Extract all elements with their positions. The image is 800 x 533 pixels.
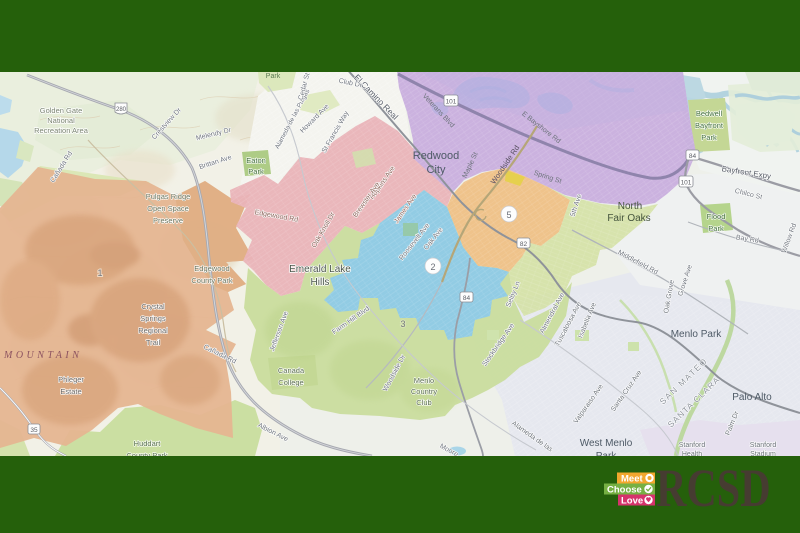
- svg-text:Redwood: Redwood: [413, 150, 459, 162]
- svg-text:Stanford: Stanford: [679, 442, 706, 449]
- svg-text:RCSD: RCSD: [656, 459, 771, 518]
- svg-text:Club: Club: [416, 398, 431, 407]
- svg-text:Emerald Lake: Emerald Lake: [289, 264, 351, 275]
- svg-text:Bedwell: Bedwell: [696, 109, 723, 118]
- svg-text:Huddart: Huddart: [134, 439, 162, 448]
- svg-text:Hills: Hills: [311, 277, 330, 288]
- svg-text:City: City: [427, 164, 446, 176]
- svg-text:Preserve: Preserve: [153, 216, 183, 225]
- svg-text:Canada: Canada: [278, 366, 305, 375]
- svg-text:5: 5: [506, 210, 511, 220]
- svg-text:County Park: County Park: [191, 276, 233, 285]
- svg-text:College: College: [278, 378, 303, 387]
- svg-text:Park: Park: [708, 224, 724, 233]
- svg-text:Bayfront: Bayfront: [695, 121, 724, 130]
- svg-text:Trail: Trail: [146, 338, 161, 347]
- svg-text:Choose: Choose: [607, 485, 642, 496]
- svg-text:Palo Alto: Palo Alto: [732, 392, 772, 403]
- svg-text:Fair Oaks: Fair Oaks: [607, 213, 650, 224]
- svg-text:Crystal: Crystal: [141, 302, 165, 311]
- svg-text:Estate: Estate: [60, 387, 81, 396]
- svg-text:Country: Country: [411, 387, 438, 396]
- svg-text:Recreation Area: Recreation Area: [34, 126, 89, 135]
- svg-text:280: 280: [116, 107, 127, 113]
- svg-text:2: 2: [430, 262, 435, 272]
- svg-text:Menlo: Menlo: [414, 376, 434, 385]
- svg-text:Meet: Meet: [621, 474, 643, 485]
- svg-text:National: National: [47, 116, 75, 125]
- svg-text:Flood: Flood: [707, 212, 726, 221]
- svg-text:Regional: Regional: [138, 326, 168, 335]
- svg-text:North: North: [618, 201, 642, 212]
- svg-text:1: 1: [97, 268, 102, 278]
- svg-text:Edgewood: Edgewood: [194, 264, 229, 273]
- svg-text:84: 84: [689, 153, 697, 160]
- svg-text:Pulgas Ridge: Pulgas Ridge: [146, 192, 191, 201]
- svg-text:Park: Park: [701, 133, 717, 142]
- svg-text:Eaton: Eaton: [246, 156, 266, 165]
- svg-text:West Menlo: West Menlo: [580, 438, 633, 449]
- svg-text:Springs: Springs: [140, 314, 166, 323]
- svg-text:Golden Gate: Golden Gate: [40, 106, 83, 115]
- svg-text:Park: Park: [266, 73, 281, 80]
- svg-text:Love: Love: [621, 496, 643, 507]
- svg-text:101: 101: [446, 99, 457, 106]
- svg-text:82: 82: [520, 241, 528, 248]
- svg-text:Menlo Park: Menlo Park: [671, 329, 723, 340]
- svg-text:Phleger: Phleger: [58, 375, 84, 384]
- svg-text:Open Space: Open Space: [147, 204, 189, 213]
- svg-text:Park: Park: [248, 167, 264, 176]
- svg-text:84: 84: [463, 295, 471, 302]
- svg-text:Stanford: Stanford: [750, 442, 777, 449]
- svg-text:MOUNTAIN: MOUNTAIN: [3, 350, 82, 361]
- svg-text:3: 3: [400, 319, 405, 329]
- svg-text:101: 101: [681, 180, 692, 187]
- svg-text:35: 35: [30, 427, 38, 434]
